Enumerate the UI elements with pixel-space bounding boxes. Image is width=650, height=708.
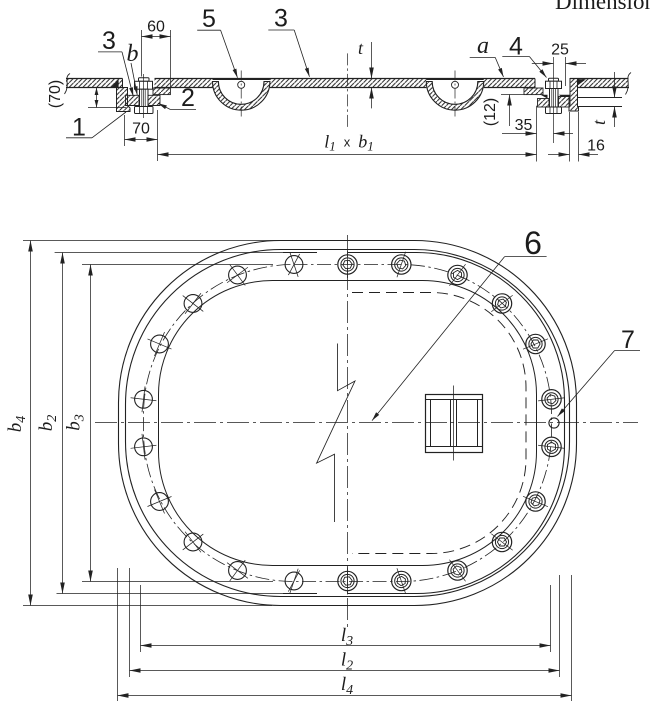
svg-text:l2: l2 (341, 650, 353, 674)
svg-text:t: t (589, 119, 609, 125)
svg-text:b2: b2 (36, 415, 60, 432)
svg-text:16: 16 (587, 138, 605, 155)
svg-text:7: 7 (621, 326, 635, 354)
svg-text:l4: l4 (341, 674, 353, 698)
svg-text:25: 25 (551, 42, 569, 59)
svg-text:b4: b4 (5, 416, 29, 433)
svg-text:5: 5 (202, 5, 216, 33)
svg-text:6: 6 (524, 225, 542, 261)
svg-text:b3: b3 (64, 414, 88, 431)
svg-text:l1: l1 (324, 132, 336, 154)
svg-text:3: 3 (102, 27, 116, 55)
svg-text:3: 3 (274, 5, 288, 33)
svg-text:(12): (12) (482, 98, 499, 126)
svg-text:b1: b1 (358, 132, 374, 154)
svg-text:l3: l3 (341, 625, 353, 649)
svg-text:a: a (477, 33, 489, 59)
svg-text:x: x (344, 135, 351, 150)
svg-text:t: t (358, 38, 364, 58)
svg-text:Dimensions: Dimensions (555, 0, 650, 14)
svg-text:35: 35 (515, 117, 533, 134)
svg-text:70: 70 (132, 121, 150, 138)
svg-text:2: 2 (181, 84, 195, 112)
svg-text:(70): (70) (47, 80, 64, 108)
svg-text:60: 60 (147, 19, 165, 36)
svg-text:1: 1 (72, 114, 86, 142)
svg-text:b: b (127, 41, 139, 67)
